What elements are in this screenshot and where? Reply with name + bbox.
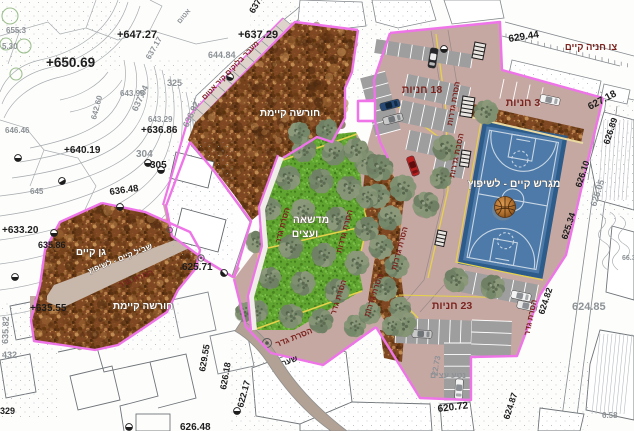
svg-text:643.95: 643.95 [120, 89, 145, 98]
svg-text:גן קיים: גן קיים [76, 247, 106, 258]
svg-text:625.71: 625.71 [182, 262, 213, 273]
svg-text:645: 645 [30, 187, 44, 196]
svg-text:624.85: 624.85 [572, 301, 606, 313]
svg-text:+640.19: +640.19 [64, 145, 101, 156]
svg-text:18 חניות: 18 חניות [402, 84, 443, 96]
svg-text:626.48: 626.48 [180, 422, 211, 431]
svg-text:+635.55: +635.55 [30, 303, 67, 314]
svg-text:655.3: 655.3 [6, 26, 27, 35]
svg-text:646.46: 646.46 [5, 126, 30, 135]
svg-text:+633.20: +633.20 [2, 225, 39, 236]
svg-text:644.84: 644.84 [208, 50, 236, 60]
svg-text:329: 329 [0, 406, 15, 416]
svg-text:חורשה קיימת: חורשה קיימת [113, 301, 173, 312]
svg-text:66.3: 66.3 [622, 255, 634, 262]
svg-text:23 חניות: 23 חניות [432, 300, 473, 312]
svg-text:643.29: 643.29 [148, 115, 173, 124]
svg-text:ועצים: ועצים [292, 228, 319, 240]
svg-text:5.30: 5.30 [2, 42, 18, 51]
svg-text:304: 304 [136, 149, 153, 160]
svg-text:נטע עצים: נטע עצים [430, 370, 466, 380]
svg-text:צו חניה קיים: צו חניה קיים [565, 42, 618, 53]
svg-text:305: 305 [150, 160, 167, 171]
svg-text:מדשאה: מדשאה [293, 214, 329, 226]
svg-text:חורשה קיימת: חורשה קיימת [260, 108, 320, 119]
svg-text:+650.69: +650.69 [46, 55, 95, 70]
svg-text:325: 325 [167, 78, 182, 88]
svg-text:+637.29: +637.29 [238, 29, 278, 41]
svg-text:+636.86: +636.86 [141, 125, 178, 136]
svg-text:635.86: 635.86 [38, 240, 66, 250]
svg-text:635.82: 635.82 [0, 316, 11, 344]
svg-text:432: 432 [2, 350, 17, 360]
svg-text:6.58: 6.58 [602, 411, 618, 420]
svg-text:+647.27: +647.27 [117, 29, 157, 41]
svg-text:3 חניות: 3 חניות [506, 97, 541, 109]
svg-text:מגרש קיים - לשיפוץ: מגרש קיים - לשיפוץ [467, 178, 560, 190]
